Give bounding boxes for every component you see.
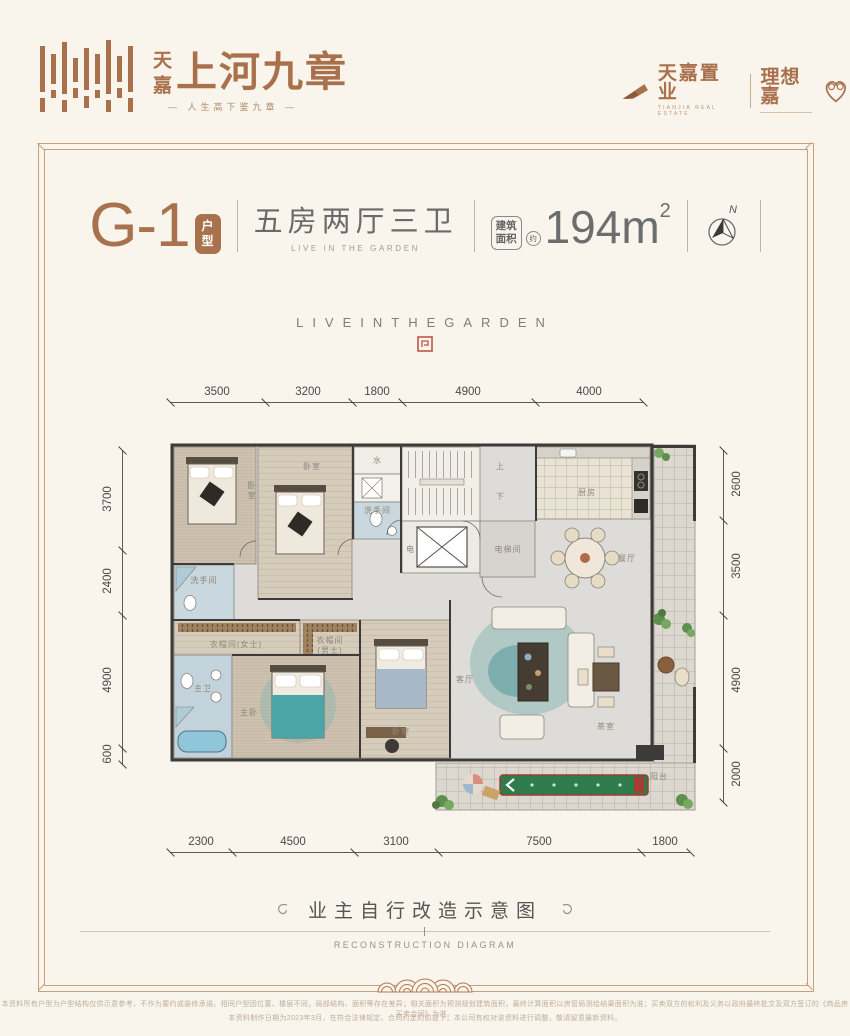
title-divider [474, 200, 475, 252]
area-badge-line: 面积 [496, 233, 517, 246]
room-label-bedroom1: 卧室 [246, 481, 257, 501]
seal-stamp-icon [417, 336, 433, 352]
dim-left-3: 4900 [102, 655, 114, 705]
ornament-curl-right-icon [560, 902, 574, 918]
bed-blanket [376, 669, 426, 708]
layout-text: 五房两厅三卫 [254, 198, 458, 240]
sub-brand-name: 理想嘉 [760, 68, 812, 106]
terrace [654, 445, 695, 763]
dim-line-left [122, 450, 123, 764]
title-divider [237, 200, 238, 252]
dim-right-1: 2600 [731, 459, 743, 509]
heart-logo-icon [822, 76, 850, 106]
room-label-bath-lower: 洗手间 [174, 575, 234, 586]
putting-mat-icon [500, 775, 648, 795]
footer-title-row: 业主自行改造示意图 [0, 896, 850, 923]
dim-top-5: 4000 [564, 386, 614, 398]
dim-right-2: 3500 [731, 541, 743, 591]
sink-icon [211, 670, 221, 680]
stair-flight [408, 488, 474, 515]
room-label-elevator-hall: 电梯间 [486, 544, 530, 555]
compass-n: N [729, 204, 737, 216]
stair-landing [420, 479, 464, 485]
dim-bottom-4: 7500 [514, 836, 564, 848]
area-badge-line: 建筑 [496, 220, 517, 233]
room-label-bedroom2: 卧室 [303, 461, 321, 472]
unit-group: G-1 户 型 [89, 198, 220, 254]
fridge-icon [634, 499, 648, 513]
dim-bottom-1: 2300 [176, 836, 226, 848]
header-logos: 天嘉置业 TIANJIA REAL ESTATE 理想嘉 [622, 64, 850, 117]
disclaimer-line2: 本资料制作日期为2023年3月，在符合法律规定、合同约定的前提下，本公司有权对该… [0, 1013, 850, 1023]
chair-icon [598, 697, 614, 707]
footer-divider [80, 931, 770, 932]
layout-subtext: LIVE IN THE GARDEN [254, 244, 458, 253]
bed-headboard [374, 639, 428, 646]
room-label-tea-room: 茶室 [597, 721, 615, 732]
approx-circle: 约 [526, 231, 541, 246]
sink-icon [211, 692, 221, 702]
sub-brand-logo: 理想嘉 [760, 68, 812, 113]
dim-right-4: 2000 [731, 749, 743, 799]
floor-plan: 卧室 卧室 水 洗手间 上 下 电 电梯间 厨房 餐厅 洗手间 衣帽间(女士) … [170, 443, 697, 815]
room-label-stair-up: 上 [496, 461, 505, 472]
unit-type-badge: 户 型 [195, 214, 221, 254]
room-label-master-bedroom: 主卧 [240, 707, 258, 718]
room-label-master-bath: 主卫 [194, 683, 212, 694]
bed-headboard [270, 665, 326, 672]
area-badge: 建筑 面积 [491, 216, 522, 250]
brand-tagline: — 人生高下鉴九章 — [148, 100, 318, 113]
bed-headboard [186, 457, 238, 464]
footer-subtitle: RECONSTRUCTION DIAGRAM [0, 940, 850, 950]
chair-icon [578, 669, 588, 685]
bed-headboard [274, 485, 326, 492]
cloud-ornament-icon [377, 969, 473, 993]
kitchen-counter [536, 447, 650, 458]
room-label-bath-upper: 洗手间 [364, 505, 391, 516]
title-divider [687, 200, 688, 252]
wall-block [636, 745, 664, 760]
wardrobe-rail [178, 623, 296, 632]
area-value: 194m2 [545, 201, 671, 250]
tea-table-icon [593, 663, 619, 691]
chair-icon [598, 647, 614, 657]
sofa-icon [492, 607, 566, 629]
room-label-bedroom-mid: 卧室 [392, 726, 410, 737]
sofa-icon [500, 715, 544, 739]
unit-badge-char: 户 [202, 219, 214, 234]
room-label-elec: 电 [406, 544, 415, 555]
ornament-curl-left-icon [276, 902, 290, 918]
centerpiece-icon [580, 553, 590, 563]
room-label-kitchen: 厨房 [578, 487, 596, 498]
unit-badge-char: 型 [202, 234, 214, 249]
stair-flight [408, 451, 474, 478]
chair-icon [385, 739, 399, 753]
sink-icon [560, 449, 576, 457]
room-label-balcony: 阳台 [650, 771, 668, 782]
wardrobe-rail [303, 623, 357, 632]
area-group: 建筑 面积 约 194m2 [491, 201, 671, 250]
dim-line-top [170, 402, 643, 403]
footer-divider-tick [424, 927, 425, 936]
hero-spaced-text: LIVEINTHEGARDEN [0, 315, 850, 330]
area-exponent: 2 [660, 200, 671, 222]
brand-title: 上河九章 [176, 52, 348, 93]
room-label-dining: 餐厅 [618, 553, 636, 564]
title-divider [760, 200, 761, 252]
dim-line-bottom [170, 852, 690, 853]
dim-bottom-3: 3100 [371, 836, 421, 848]
mat-end-zone [634, 777, 644, 793]
developer-mark-icon [622, 79, 648, 103]
developer-logo: 天嘉置业 TIANJIA REAL ESTATE [658, 64, 740, 117]
room-label-stair-down: 下 [496, 491, 505, 502]
layout-group: 五房两厅三卫 LIVE IN THE GARDEN [254, 198, 458, 253]
coffee-table-icon [518, 643, 548, 701]
room-label-water: 水 [373, 455, 382, 466]
unit-code: G-1 [89, 198, 189, 254]
poster-page: 天嘉 上河九章 — 人生高下鉴九章 — 天嘉置业 TIANJIA REAL ES… [0, 0, 850, 1036]
bathtub-icon [178, 731, 226, 752]
dim-left-4: 600 [102, 729, 114, 779]
developer-name: 天嘉置业 [658, 64, 740, 102]
sub-brand-rule [760, 109, 812, 113]
developer-name-en: TIANJIA REAL ESTATE [658, 105, 740, 117]
room-label-cloak-female: 衣帽间(女士) [180, 639, 292, 650]
dim-top-4: 4900 [443, 386, 493, 398]
stool-icon [658, 657, 674, 673]
toilet-icon [184, 596, 196, 611]
bed-blanket [272, 695, 324, 738]
dim-bottom-5: 1800 [640, 836, 690, 848]
compass-icon: N [704, 200, 744, 252]
room-label-cloak-male-2: (男士) [302, 645, 358, 656]
room-label-living: 客厅 [456, 674, 474, 685]
chair-icon [675, 668, 689, 686]
toilet-icon [181, 674, 193, 689]
dim-top-1: 3500 [192, 386, 242, 398]
logo-divider [750, 74, 751, 108]
dim-right-3: 4900 [731, 655, 743, 705]
dim-left-2: 2400 [102, 556, 114, 606]
dim-top-2: 3200 [283, 386, 333, 398]
dim-top-3: 1800 [352, 386, 402, 398]
dim-left-1: 3700 [102, 474, 114, 524]
dim-bottom-2: 4500 [268, 836, 318, 848]
title-bar: G-1 户 型 五房两厅三卫 LIVE IN THE GARDEN 建筑 面积 … [0, 198, 850, 254]
footer-title: 业主自行改造示意图 [308, 896, 542, 923]
brand-bars-logo-icon [40, 38, 140, 118]
